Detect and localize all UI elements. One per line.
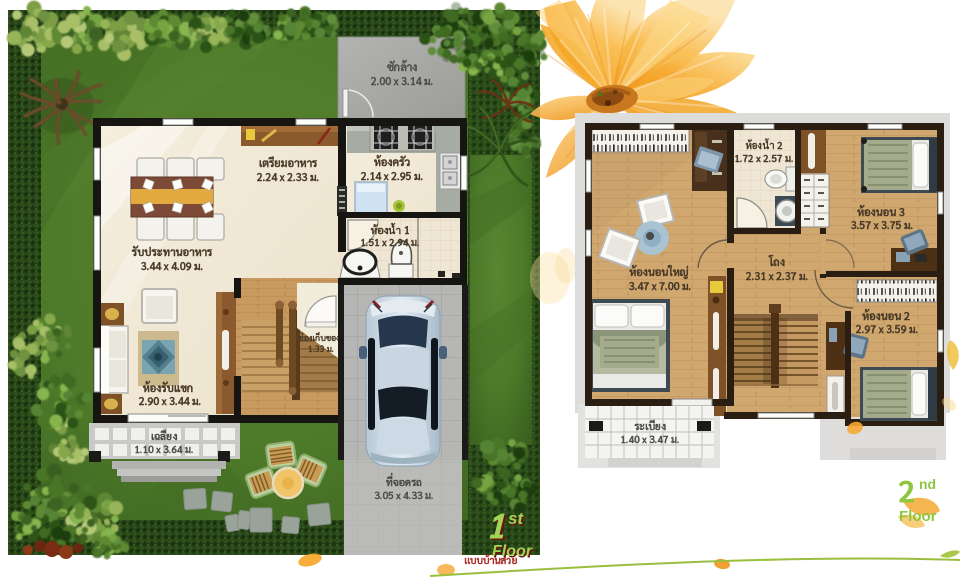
svg-text:1.51 x 2.94 ม.: 1.51 x 2.94 ม. [360, 236, 420, 249]
svg-text:1.72 x 2.57 ม.: 1.72 x 2.57 ม. [734, 152, 794, 165]
svg-text:2: 2 [898, 470, 915, 509]
svg-text:2.31 x 2.37 ม.: 2.31 x 2.37 ม. [745, 270, 809, 283]
svg-text:3.05 x 4.33 ม.: 3.05 x 4.33 ม. [374, 489, 434, 502]
svg-text:1.40 x 3.47 ม.: 1.40 x 3.47 ม. [620, 433, 680, 446]
svg-text:st: st [508, 506, 524, 528]
svg-text:2.97 x 3.59 ม.: 2.97 x 3.59 ม. [855, 323, 919, 336]
svg-text:ห้องน้ำ 2: ห้องน้ำ 2 [744, 138, 783, 152]
svg-text:ห้องรับแขก: ห้องรับแขก [143, 380, 194, 395]
svg-text:2.90 x 3.44 ม.: 2.90 x 3.44 ม. [138, 395, 202, 408]
svg-text:2.00 x 3.14 ม.: 2.00 x 3.14 ม. [370, 75, 434, 88]
svg-text:3.44 x 4.09 ม.: 3.44 x 4.09 ม. [141, 260, 204, 273]
svg-text:1.10 x 3.64 ม.: 1.10 x 3.64 ม. [134, 443, 194, 456]
svg-text:รับประทานอาหาร: รับประทานอาหาร [132, 244, 213, 259]
svg-text:ห้องนอนใหญ่: ห้องนอนใหญ่ [629, 263, 690, 280]
svg-text:nd: nd [919, 475, 936, 493]
svg-text:ห้องครัว: ห้องครัว [374, 154, 411, 169]
svg-text:ห้องนอน 3: ห้องนอน 3 [857, 204, 905, 219]
svg-text:ช่องเก็บของ: ช่องเก็บของ [298, 332, 340, 343]
svg-text:ระเบียง: ระเบียง [634, 420, 666, 433]
svg-text:3.57 x 3.75 ม.: 3.57 x 3.75 ม. [851, 219, 914, 232]
svg-text:1.33 ม.: 1.33 ม. [308, 343, 334, 354]
svg-text:2.24 x 2.33 ม.: 2.24 x 2.33 ม. [256, 171, 320, 184]
svg-text:เฉลียง: เฉลียง [151, 430, 178, 443]
svg-text:ที่จอดรถ: ที่จอดรถ [386, 473, 424, 489]
svg-text:2.14 x 2.95 ม.: 2.14 x 2.95 ม. [360, 170, 424, 183]
svg-text:3.47 x 7.00 ม.: 3.47 x 7.00 ม. [629, 280, 692, 293]
svg-text:เตรียมอาหาร: เตรียมอาหาร [259, 155, 318, 170]
svg-text:ห้องนอน 2: ห้องนอน 2 [862, 308, 911, 323]
svg-text:โถง: โถง [768, 253, 785, 269]
svg-text:ซักล้าง: ซักล้าง [387, 59, 417, 74]
svg-text:แบบบ้านสวย: แบบบ้านสวย [464, 553, 518, 567]
svg-text:Floor: Floor [899, 506, 937, 525]
svg-text:ห้องน้ำ 1: ห้องน้ำ 1 [370, 222, 409, 237]
